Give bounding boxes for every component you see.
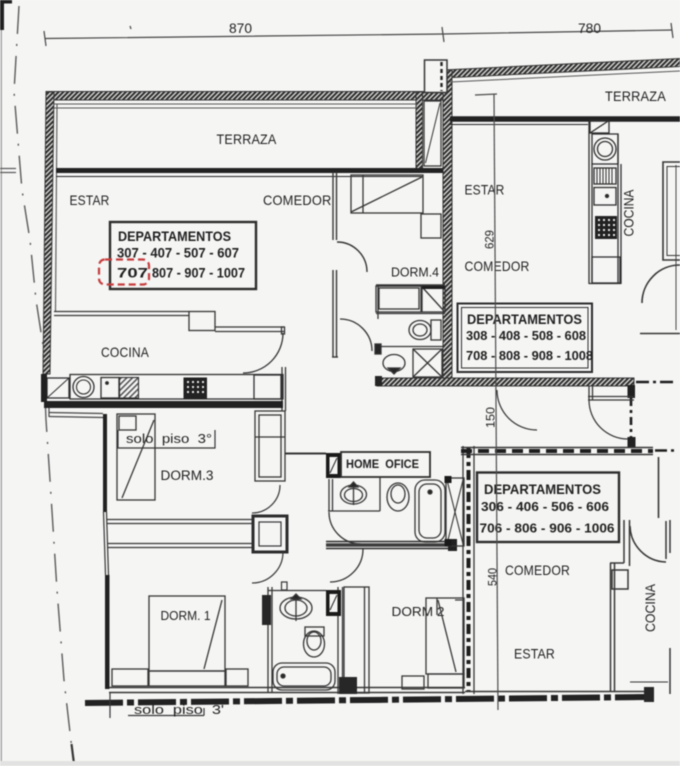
svg-text:780: 780 [578, 21, 601, 36]
svg-text:870: 870 [229, 21, 252, 36]
svg-text:COMEDOR: COMEDOR [465, 258, 530, 274]
svg-text:DORM.3: DORM.3 [161, 468, 214, 483]
svg-text:COCINA: COCINA [622, 190, 637, 237]
svg-text:706 - 806 - 906 - 1006: 706 - 806 - 906 - 1006 [480, 521, 615, 536]
svg-text:DEPARTAMENTOS: DEPARTAMENTOS [484, 482, 601, 497]
svg-text:DEPARTAMENTOS: DEPARTAMENTOS [467, 312, 582, 327]
svg-text:COMEDOR: COMEDOR [505, 562, 570, 578]
svg-text:540: 540 [488, 568, 500, 586]
svg-text:150: 150 [486, 407, 498, 428]
svg-text:DORM. 1: DORM. 1 [161, 609, 211, 623]
svg-text:solo piso 3°: solo piso 3° [126, 431, 212, 446]
svg-text:307 - 407 - 507 - 607: 307 - 407 - 507 - 607 [117, 246, 239, 261]
svg-text:ESTAR: ESTAR [70, 192, 110, 208]
svg-text:ESTAR: ESTAR [514, 646, 555, 662]
svg-text:COMEDOR: COMEDOR [263, 192, 332, 208]
svg-text:solo piso 3': solo piso 3' [134, 703, 224, 717]
svg-text:708 - 808 - 908 - 1008: 708 - 808 - 908 - 1008 [466, 348, 593, 363]
svg-text:DEPARTAMENTOS: DEPARTAMENTOS [118, 228, 231, 244]
svg-text:707: 707 [117, 266, 148, 281]
svg-text:COCINA: COCINA [642, 583, 658, 632]
svg-text:306 - 406 - 506 - 606: 306 - 406 - 506 - 606 [481, 499, 609, 514]
svg-text:COCINA: COCINA [101, 344, 149, 360]
svg-text:629: 629 [485, 230, 497, 249]
svg-text:ESTAR: ESTAR [465, 182, 505, 198]
svg-text:HOME OFICE: HOME OFICE [346, 457, 419, 471]
svg-text:308 - 408 - 508 - 608: 308 - 408 - 508 - 608 [466, 328, 586, 343]
svg-text:TERRAZA: TERRAZA [605, 88, 666, 104]
svg-text:TERRAZA: TERRAZA [217, 131, 277, 147]
svg-text:807 - 907 - 1007: 807 - 907 - 1007 [152, 266, 245, 281]
svg-text:DORM.4: DORM.4 [391, 266, 439, 280]
